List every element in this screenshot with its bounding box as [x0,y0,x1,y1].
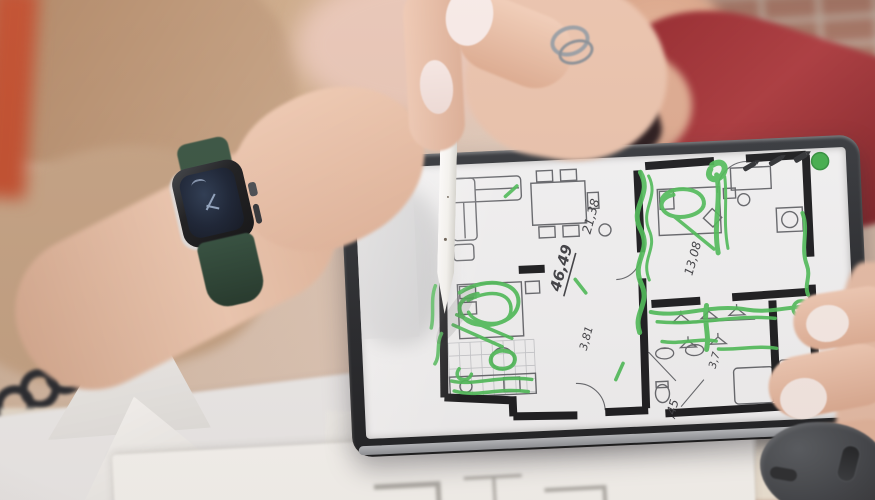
mouse-side-button [769,466,798,483]
mouse-scroll-wheel [836,444,861,482]
watch-crown [247,181,258,196]
watch-band-bottom [196,231,268,310]
computer-mouse [760,422,875,500]
pencil-speck [447,196,449,198]
watch-face-marking [190,178,207,192]
watch-side-button [252,203,262,224]
photo-scene: 21,38 46,49 13,08 3,81 3,7 ,45 [0,0,875,500]
pencil-speck [444,238,447,241]
